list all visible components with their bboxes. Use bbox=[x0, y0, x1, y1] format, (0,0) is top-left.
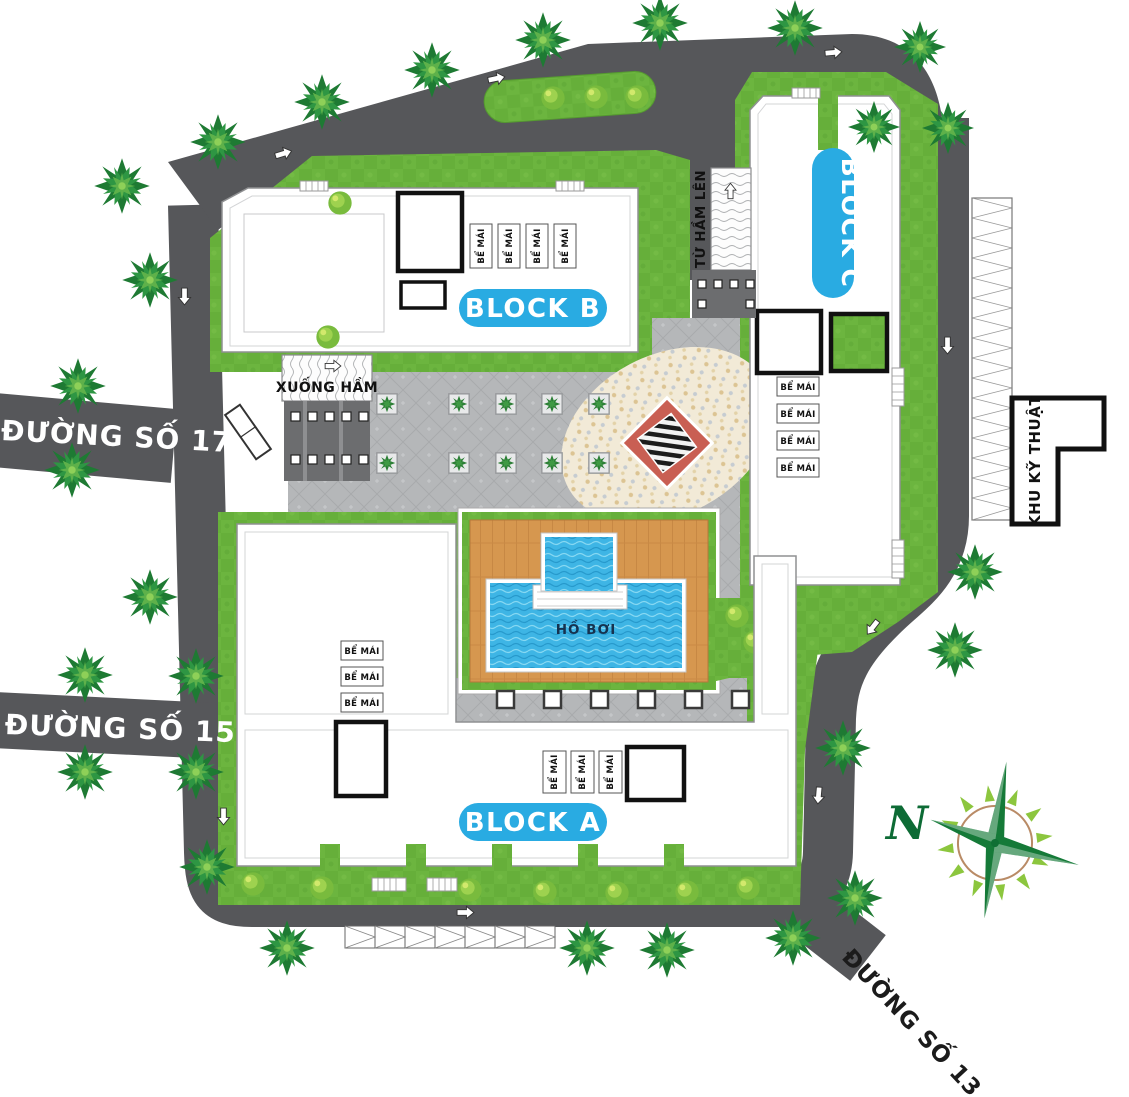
compass: N bbox=[884, 752, 1092, 930]
ramp-up-area: TỪ HẦM LÊN bbox=[690, 168, 756, 318]
road-13-label: ĐƯỜNG SỐ 13 bbox=[836, 941, 990, 1097]
roof-garden bbox=[831, 314, 887, 371]
ramp-down-area: XUỐNG HẦM bbox=[225, 355, 378, 481]
compass-star bbox=[918, 752, 1092, 930]
tech-room-label: KHU KỸ THUẬT bbox=[1024, 395, 1044, 527]
parking-east bbox=[972, 198, 1012, 520]
roof-structure bbox=[398, 193, 462, 271]
roof-tanks-a-west: BỂ MÁI BỂ MÁI BỂ MÁI bbox=[341, 641, 383, 712]
block-c-label: BLOCK C bbox=[836, 158, 865, 289]
site-plan-page: HỒ BƠI BỂ MÁI BỂ MÁI BỂ MÁI BỂ MÁI BLOCK… bbox=[0, 0, 1129, 1097]
block-c-green-slot bbox=[818, 94, 838, 150]
parking-south bbox=[345, 926, 555, 948]
kid-pool bbox=[545, 537, 613, 591]
block-b: BỂ MÁI BỂ MÁI BỂ MÁI BỂ MÁI BLOCK B bbox=[222, 181, 638, 352]
garage-exit bbox=[692, 270, 756, 318]
roof-tanks-a-south: BỂ MÁI BỂ MÁI BỂ MÁI bbox=[543, 751, 622, 793]
block-b-label: BLOCK B bbox=[465, 294, 601, 324]
north-label: N bbox=[884, 796, 930, 850]
roof-structure-small bbox=[401, 282, 445, 308]
block-c: BỂ MÁI BỂ MÁI BỂ MÁI BỂ MÁI BLOCK C bbox=[750, 88, 904, 585]
green-driveway-side bbox=[656, 150, 690, 318]
ramp-up-label: TỪ HẦM LÊN bbox=[690, 170, 709, 268]
tech-room: KHU KỸ THUẬT bbox=[1012, 395, 1104, 527]
bush-icon bbox=[725, 604, 748, 627]
roof-structure bbox=[336, 722, 386, 796]
roof-structure bbox=[627, 747, 684, 800]
block-a-label: BLOCK A bbox=[465, 808, 601, 838]
pool-label: HỒ BƠI bbox=[556, 619, 617, 638]
site-plan: HỒ BƠI BỂ MÁI BỂ MÁI BỂ MÁI BỂ MÁI BLOCK… bbox=[0, 0, 1129, 1097]
roof-structure bbox=[757, 311, 821, 373]
